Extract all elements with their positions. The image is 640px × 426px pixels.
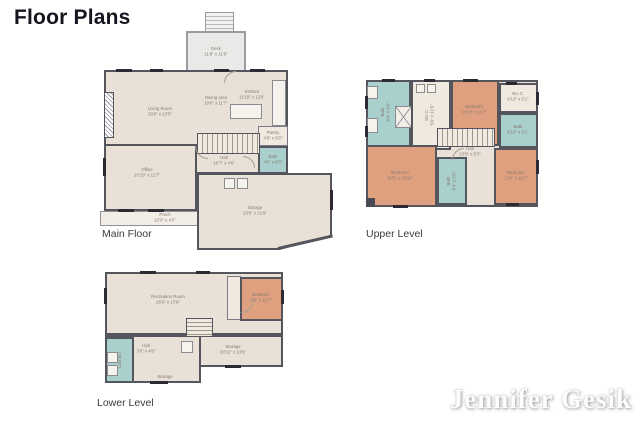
main-floor-caption: Main Floor <box>102 228 152 240</box>
garage-utility-icon <box>224 178 235 189</box>
kitchen-island-icon <box>230 104 262 119</box>
chimney-icon <box>366 198 375 207</box>
window-icon <box>382 79 395 82</box>
garage-utility-icon <box>237 178 248 189</box>
window-icon <box>150 69 163 72</box>
window-icon <box>118 209 134 212</box>
window-icon <box>116 69 132 72</box>
room-lower-closet <box>227 276 241 320</box>
lower-stairs-icon <box>186 318 213 337</box>
room-label-living: Living Room20'6" x 13'5" <box>148 106 172 117</box>
room-label-bath-right: Bath8'10" x 5'1" <box>507 124 528 135</box>
room-label-bath-main: Bath4'0" x 5'0" <box>264 154 283 165</box>
room-label-bedroom-br: Bedroom13'4" x 11'7" <box>504 170 527 181</box>
furnace-icon <box>181 341 193 353</box>
room-label-bedroom-master: Bedroom16'5" x 13'10" <box>387 170 413 181</box>
room-label-storage: Storage20'11" x 13'6" <box>220 344 246 355</box>
window-icon <box>281 290 284 304</box>
watermark: Jennifer Gesik <box>450 384 632 415</box>
deck-stairs-icon <box>205 12 234 32</box>
linen-closet-icon <box>367 118 378 133</box>
room-label-hall-main: Hall10'7" x 4'6" <box>213 155 234 166</box>
window-icon <box>393 205 408 208</box>
room-label-pantry: Pantry4'0" x 5'0" <box>264 130 283 141</box>
room-label-garage: Garage23'6" x 21'9" <box>243 205 267 216</box>
room-label-office: Office10'10" x 11'7" <box>134 167 160 178</box>
room-label-bath-ul: Bath8'9" x 9'6" <box>380 103 391 122</box>
dryer-icon <box>427 84 436 93</box>
window-icon <box>330 190 333 210</box>
window-icon <box>150 381 168 384</box>
room-label-bath-mid: Bath8'4" x 5'0" <box>446 172 457 191</box>
window-icon <box>536 92 539 105</box>
washer-icon <box>416 84 425 93</box>
room-label-wic-right: W.I.C.8'10" x 5'1" <box>507 91 528 102</box>
window-icon <box>506 203 519 206</box>
lower-level-caption: Lower Level <box>97 397 154 409</box>
window-icon <box>225 365 241 368</box>
room-label-recreation: Recreation Room26'0" x 13'8" <box>151 294 185 305</box>
window-icon <box>365 126 368 137</box>
room-label-porch: Porch22'0" x 4'0" <box>154 212 175 223</box>
window-icon <box>365 96 368 109</box>
window-icon <box>536 160 539 174</box>
upper-stairs-icon <box>437 128 495 147</box>
linen-closet-icon <box>367 86 378 99</box>
room-label-hall-upper: Hall13'0" x 6'3" <box>459 146 480 157</box>
closet-x-icon <box>395 106 412 128</box>
bay-window-icon <box>104 92 114 138</box>
window-icon <box>463 79 478 82</box>
window-icon <box>214 69 229 72</box>
room-label-wic-mid: W.I.C.5'0" x 11'6" <box>424 104 435 125</box>
room-label-bedroom-lower: Bedroom9'6" x 11'7" <box>250 292 271 303</box>
window-icon <box>506 82 517 85</box>
kitchen-counter-icon <box>272 80 286 126</box>
upper-level-caption: Upper Level <box>366 228 423 240</box>
window-icon <box>140 271 156 274</box>
room-label-deck: Deck11'8" x 11'8" <box>204 46 227 57</box>
room-label-bedroom-tr: Bedroom11'10" x 11'7" <box>461 104 487 115</box>
window-icon <box>424 79 435 82</box>
window-icon <box>103 158 106 176</box>
room-label-dining: Dining area10'6" x 11'7" <box>204 95 227 106</box>
floor-plans-image: Floor Plans <box>0 0 640 426</box>
window-icon <box>196 271 210 274</box>
window-icon <box>104 288 107 304</box>
page-title: Floor Plans <box>14 6 131 30</box>
room-label-laundry: Laundry <box>117 352 123 368</box>
room-label-storage-bottom: Storage <box>157 374 172 380</box>
room-label-kitchen: Kitchen11'10" x 12'6" <box>239 89 265 100</box>
window-icon <box>250 69 265 72</box>
room-label-hall-lower: Hall3'6" x 4'6" <box>137 343 156 354</box>
